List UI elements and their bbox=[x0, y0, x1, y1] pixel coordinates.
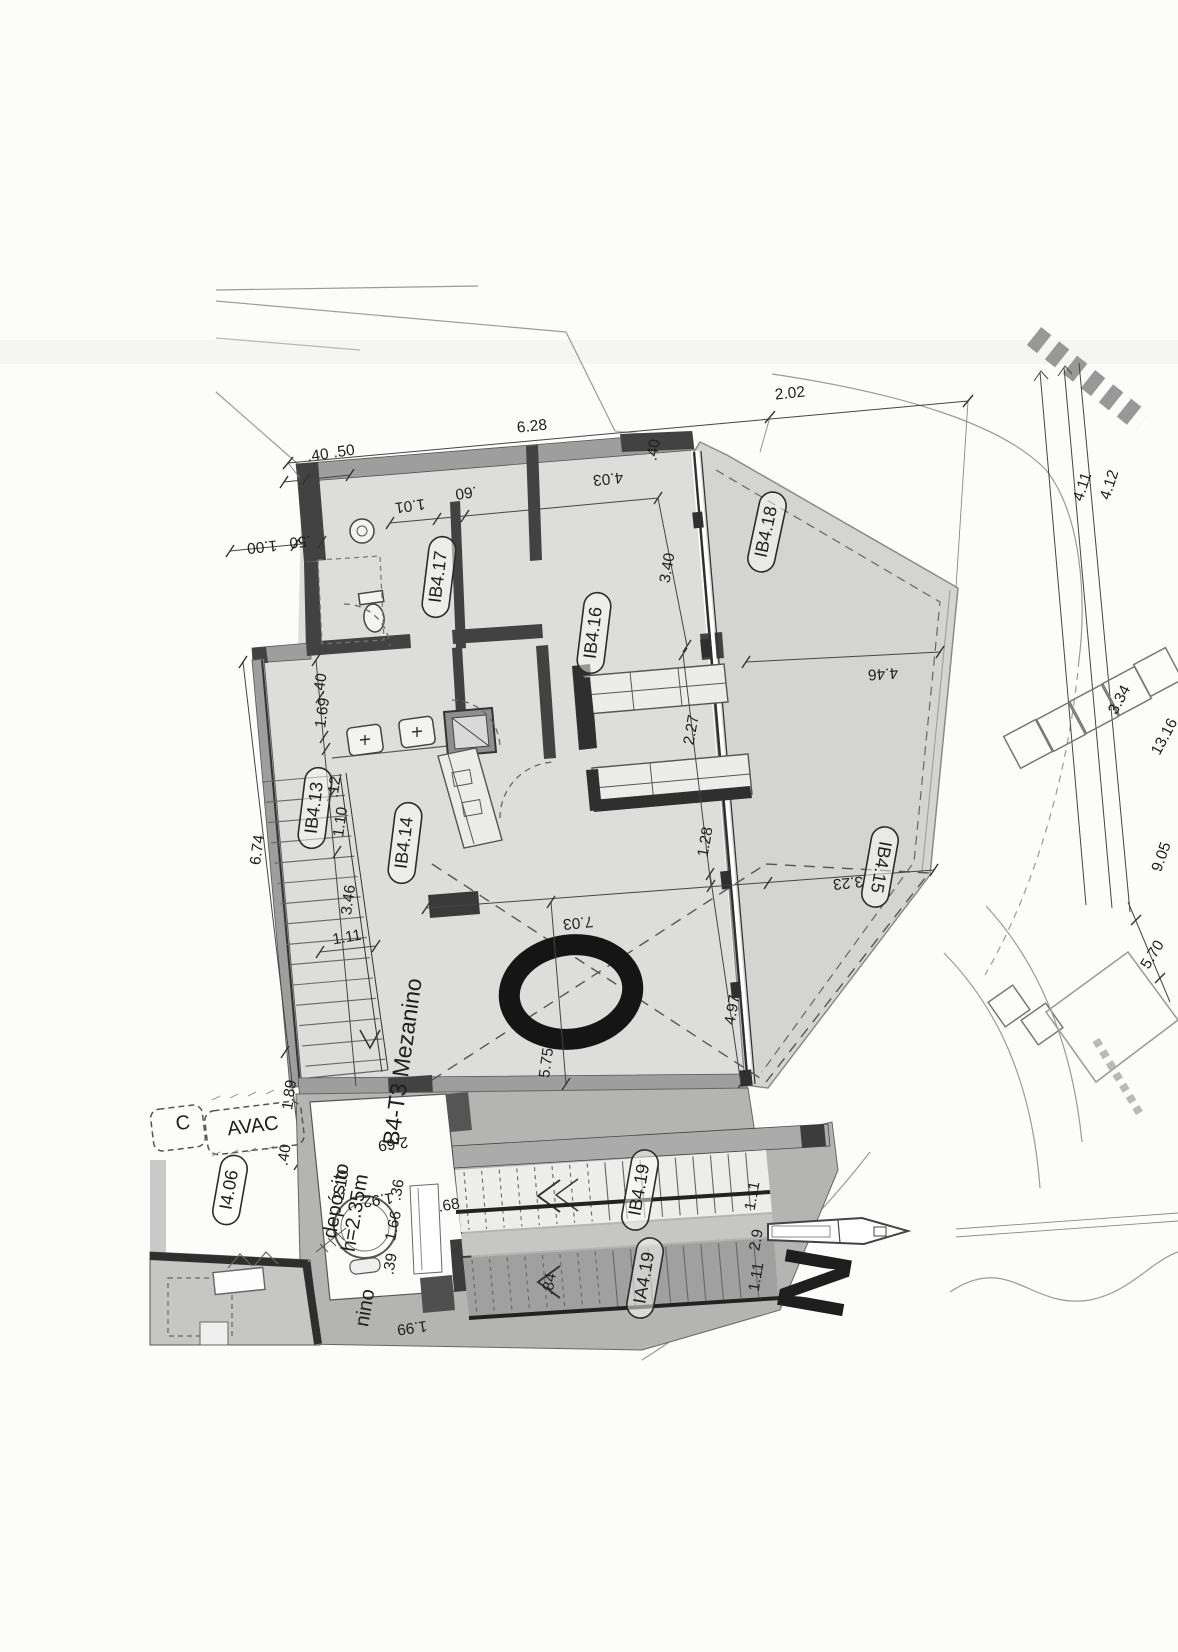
dimension-label: 3.23 bbox=[832, 872, 864, 892]
dimension-label: 1.00 bbox=[246, 536, 278, 556]
svg-text:.12: .12 bbox=[325, 775, 345, 799]
dimension-label: 7.03 bbox=[562, 912, 594, 932]
svg-text:3.23: 3.23 bbox=[832, 872, 864, 892]
svg-text:4.03: 4.03 bbox=[592, 468, 624, 488]
scan-band-artifact bbox=[0, 340, 1178, 364]
dimension-label: 2.02 bbox=[774, 384, 806, 404]
svg-text:4.46: 4.46 bbox=[867, 664, 898, 683]
svg-text:.50: .50 bbox=[288, 532, 312, 551]
dimension-label: .60 bbox=[454, 482, 478, 502]
dimension-label: 6.28 bbox=[516, 417, 548, 437]
dimension-label: .50 bbox=[332, 442, 356, 462]
bidet bbox=[350, 519, 374, 543]
window-mullion bbox=[700, 639, 712, 658]
svg-text:C: C bbox=[174, 1111, 191, 1135]
dimension-label: .12 bbox=[325, 775, 345, 799]
scanned-floor-plan-page: N B4-T3 Mezanino IB4.17IB4.16IB4.18IB4.1… bbox=[0, 0, 1178, 1652]
annotation-label: C bbox=[174, 1111, 191, 1135]
dimension-label: .50 bbox=[288, 532, 312, 551]
svg-text:.50: .50 bbox=[332, 442, 356, 462]
svg-text:.60: .60 bbox=[454, 482, 478, 502]
svg-text:.40: .40 bbox=[306, 446, 330, 466]
floor-plan-drawing: N B4-T3 Mezanino IB4.17IB4.16IB4.18IB4.1… bbox=[0, 0, 1178, 1652]
svg-text:1.00: 1.00 bbox=[246, 536, 278, 556]
dimension-label: 4.03 bbox=[592, 468, 624, 488]
dimension-label: 4.46 bbox=[867, 664, 898, 683]
svg-text:6.28: 6.28 bbox=[516, 417, 548, 437]
dimension-label: .40 bbox=[306, 446, 330, 466]
svg-text:7.03: 7.03 bbox=[562, 912, 594, 932]
dimension-label: .40 bbox=[311, 672, 331, 696]
window-mullion bbox=[720, 871, 732, 890]
svg-text:2.02: 2.02 bbox=[774, 384, 806, 404]
svg-text:.40: .40 bbox=[311, 672, 331, 696]
wall-niche bbox=[410, 1184, 442, 1274]
window-mullion bbox=[692, 512, 704, 529]
